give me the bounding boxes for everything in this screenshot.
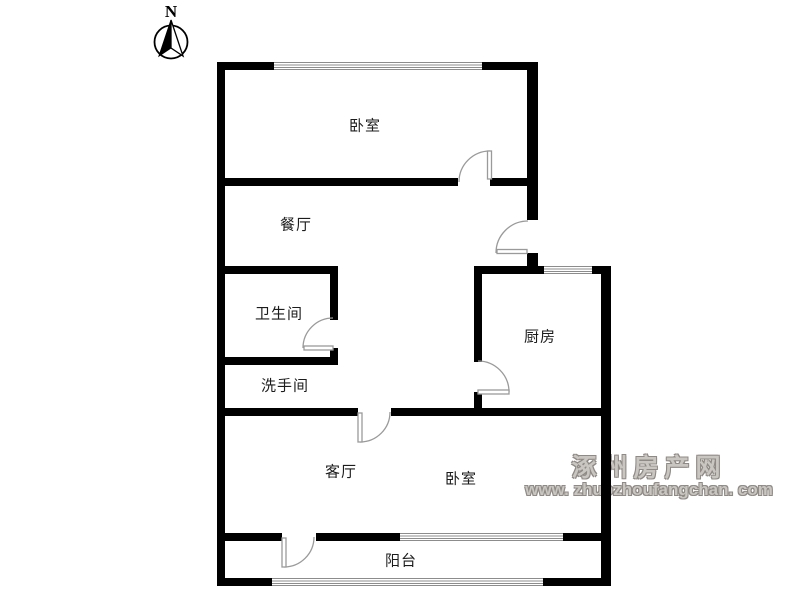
room-label-bedroom-bottom: 卧室 [445,468,477,489]
balcony-door [282,537,314,567]
walls [217,62,611,586]
floorplan-drawing [0,0,800,600]
kitchen-door [478,361,509,394]
room-label-dining-room: 餐厅 [280,214,312,235]
wall [316,533,400,541]
wall [218,578,272,586]
bedroom-top-door [459,151,492,182]
floorplan-page: N 涿州房产网 www. zhuozhoufangchan. com [0,0,800,600]
wall [474,266,544,274]
wall [218,408,358,416]
compass-north-label: N [157,2,185,22]
wall [217,62,225,586]
window-top-bedroom [274,62,482,70]
wall [330,266,338,320]
wall [218,266,338,274]
room-label-bedroom-top: 卧室 [349,115,381,136]
wall [474,266,482,362]
room-label-living-room: 客厅 [325,461,357,482]
wall [218,178,458,186]
window-bedroom-balcony [400,533,563,541]
wall [391,408,611,416]
window-kitchen [544,266,592,274]
wall [218,357,338,365]
wall [218,62,274,70]
windows [272,62,592,586]
living-room-door [358,412,390,442]
window-balcony [272,578,543,586]
room-label-balcony: 阳台 [385,550,417,571]
wall [218,533,282,541]
room-label-washroom: 洗手间 [261,375,309,396]
compass-icon [155,20,188,59]
room-label-bathroom: 卫生间 [255,303,303,324]
room-label-kitchen: 厨房 [524,326,556,347]
wall [543,578,611,586]
bathroom-door [303,318,333,350]
wall [563,533,611,541]
wall [527,62,538,220]
wall [474,392,482,416]
entrance-door [496,221,528,254]
wall [490,178,538,186]
